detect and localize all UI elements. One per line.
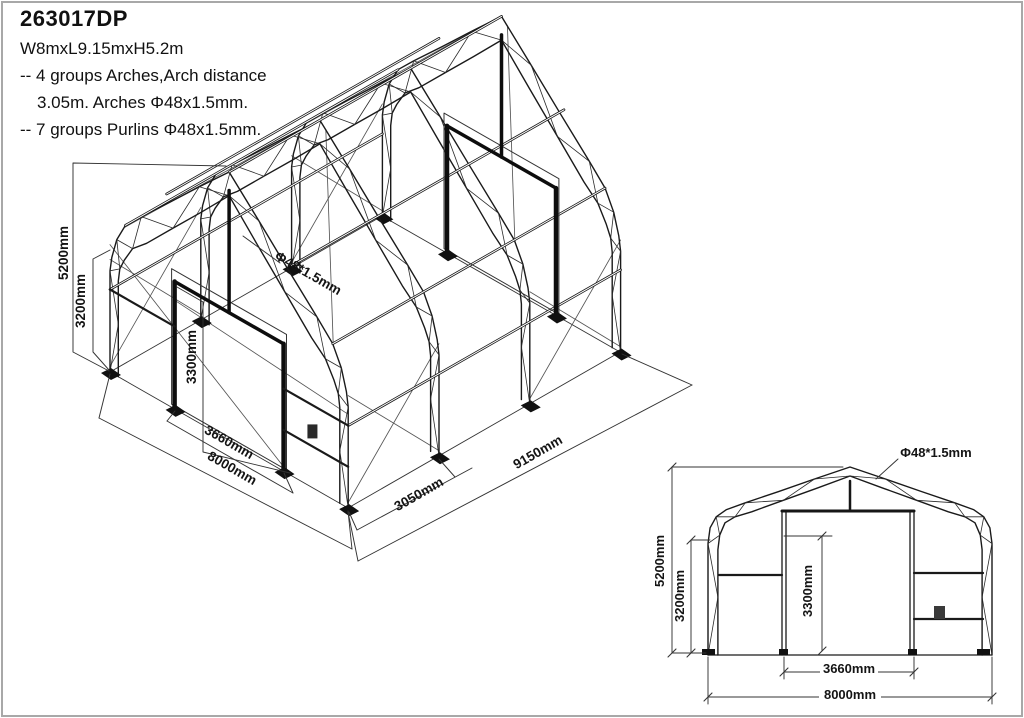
- dimension-line: [167, 421, 293, 493]
- brace-cable: [292, 156, 383, 211]
- dimension-line: [876, 459, 898, 479]
- brace-cable: [530, 292, 621, 347]
- foot-plate: [612, 348, 632, 360]
- foot-plate: [521, 400, 541, 412]
- drawing-sheet: 263017DP W8mxL9.15mxH5.2m -- 4 groups Ar…: [0, 0, 1024, 718]
- elevation-frame-drawing: [702, 467, 992, 655]
- iso-dim-door-height: 3300mm: [184, 330, 199, 384]
- latch-box: [307, 424, 317, 438]
- dimension-line: [358, 385, 692, 561]
- elev-dim-overall-height: 5200mm: [652, 535, 667, 587]
- purlin-highlight: [167, 38, 439, 194]
- dimension-line: [99, 374, 110, 418]
- iso-dimension-labels: 5200mm 3200mm 3300mm 3660mm 8000mm 3050m…: [56, 226, 565, 514]
- foot-plate: [438, 249, 458, 261]
- foot-plate: [547, 312, 567, 324]
- elev-dim-shoulder-height: 3200mm: [672, 570, 687, 622]
- elev-foot-plate: [779, 649, 788, 655]
- elev-foot-plate: [908, 649, 917, 655]
- brace-cable: [348, 396, 439, 451]
- elev-dim-width: 8000mm: [824, 687, 876, 702]
- drawing-canvas: 5200mm 3200mm 3300mm 3660mm 8000mm 3050m…: [0, 0, 1024, 718]
- dimension-line: [622, 354, 692, 385]
- elev-foot-plate: [702, 649, 715, 655]
- purlin-highlight: [348, 270, 620, 426]
- arch-inner-chord: [209, 144, 431, 452]
- brace-cable: [507, 26, 515, 243]
- elev-foot-plate: [977, 649, 990, 655]
- foot-plate: [166, 405, 186, 417]
- iso-dim-overall-height: 5200mm: [56, 226, 71, 280]
- ground-line: [348, 352, 620, 508]
- dimension-line: [93, 250, 110, 370]
- iso-dim-arch-spacing: 3050mm: [392, 474, 446, 514]
- purlin-highlight: [229, 16, 501, 172]
- ground-line: [110, 216, 382, 372]
- foot-plate: [430, 452, 450, 464]
- dimension-line: [439, 459, 455, 477]
- wall-girt: [110, 290, 175, 327]
- iso-dim-shoulder-height: 3200mm: [73, 274, 88, 328]
- foot-plate: [339, 504, 359, 516]
- ground-line: [382, 216, 620, 352]
- elev-latch-box: [934, 606, 945, 619]
- elev-pipe-spec-label: Φ48*1.5mm: [900, 445, 971, 460]
- elev-dim-door-width: 3660mm: [823, 661, 875, 676]
- dimension-line: [348, 512, 358, 561]
- elev-dim-door-height: 3300mm: [800, 565, 815, 617]
